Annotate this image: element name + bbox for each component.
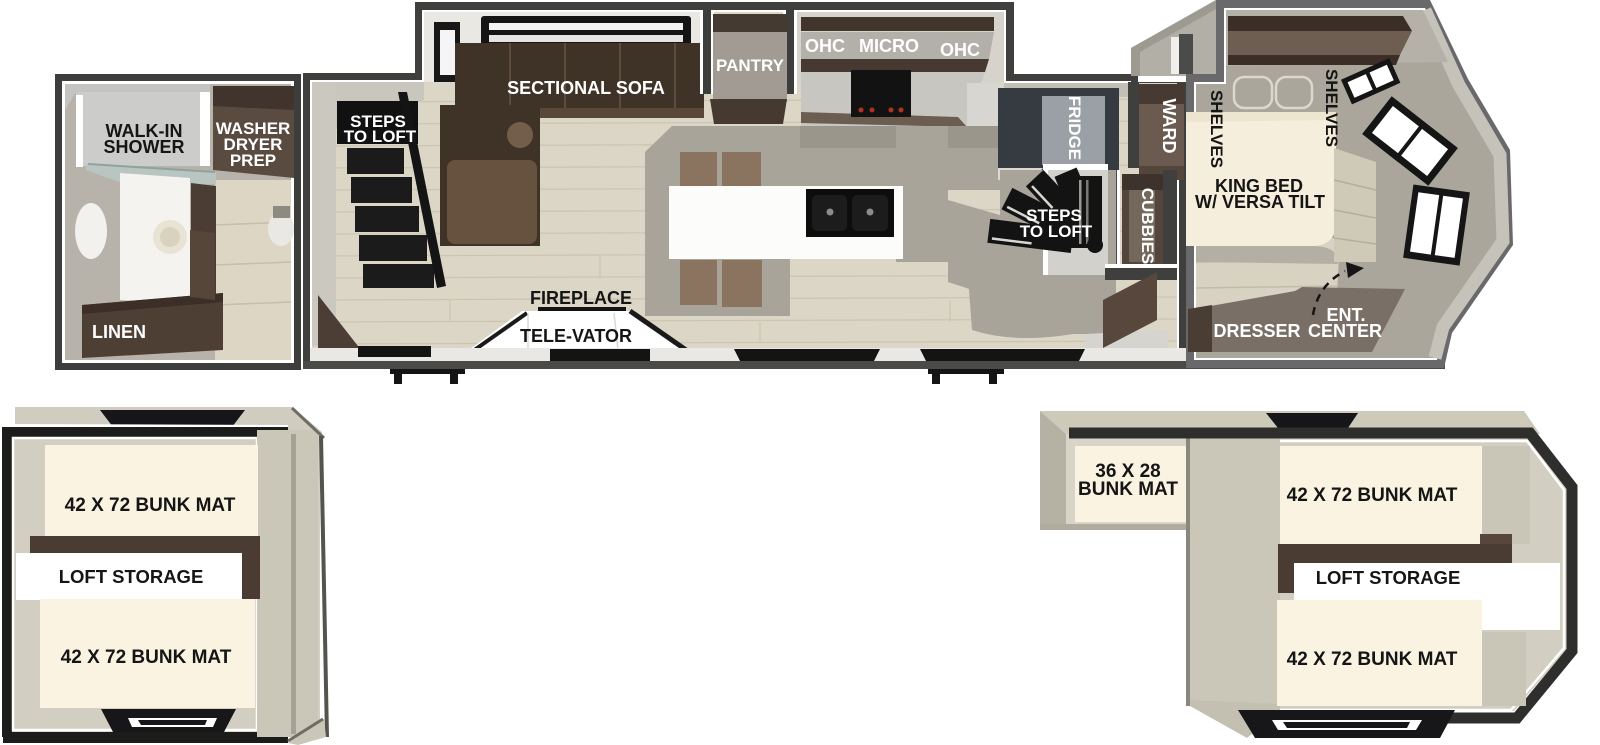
svg-text:TO LOFT: TO LOFT — [344, 127, 417, 146]
svg-text:SECTIONAL SOFA: SECTIONAL SOFA — [507, 78, 665, 98]
svg-text:LINEN: LINEN — [92, 322, 146, 342]
svg-text:SHOWER: SHOWER — [104, 137, 185, 157]
svg-text:FIREPLACE: FIREPLACE — [530, 288, 632, 308]
svg-text:42 X 72 BUNK MAT: 42 X 72 BUNK MAT — [65, 495, 236, 516]
svg-text:W/ VERSA TILT: W/ VERSA TILT — [1195, 192, 1325, 212]
svg-text:PANTRY: PANTRY — [716, 56, 785, 75]
svg-text:42 X 72 BUNK MAT: 42 X 72 BUNK MAT — [61, 647, 232, 668]
svg-text:42 X 72 BUNK MAT: 42 X 72 BUNK MAT — [1287, 485, 1458, 506]
svg-text:TO LOFT: TO LOFT — [1020, 222, 1093, 241]
svg-text:OHC: OHC — [805, 36, 845, 56]
svg-text:CUBBIES: CUBBIES — [1138, 188, 1157, 265]
svg-text:LOFT STORAGE: LOFT STORAGE — [59, 566, 204, 587]
svg-text:WARD: WARD — [1159, 99, 1179, 154]
svg-text:LOFT STORAGE: LOFT STORAGE — [1316, 567, 1461, 588]
svg-text:MICRO: MICRO — [859, 36, 919, 56]
svg-text:42 X 72 BUNK MAT: 42 X 72 BUNK MAT — [1287, 649, 1458, 670]
svg-text:PREP: PREP — [230, 151, 276, 170]
svg-text:FRIDGE: FRIDGE — [1065, 96, 1084, 160]
svg-text:OHC: OHC — [940, 40, 980, 60]
svg-text:CENTER: CENTER — [1308, 321, 1382, 341]
svg-text:BUNK MAT: BUNK MAT — [1078, 479, 1178, 500]
svg-text:SHELVES: SHELVES — [1322, 69, 1341, 147]
svg-text:DRESSER: DRESSER — [1213, 321, 1300, 341]
svg-text:SHELVES: SHELVES — [1207, 90, 1226, 168]
svg-text:TELE-VATOR: TELE-VATOR — [520, 326, 632, 346]
